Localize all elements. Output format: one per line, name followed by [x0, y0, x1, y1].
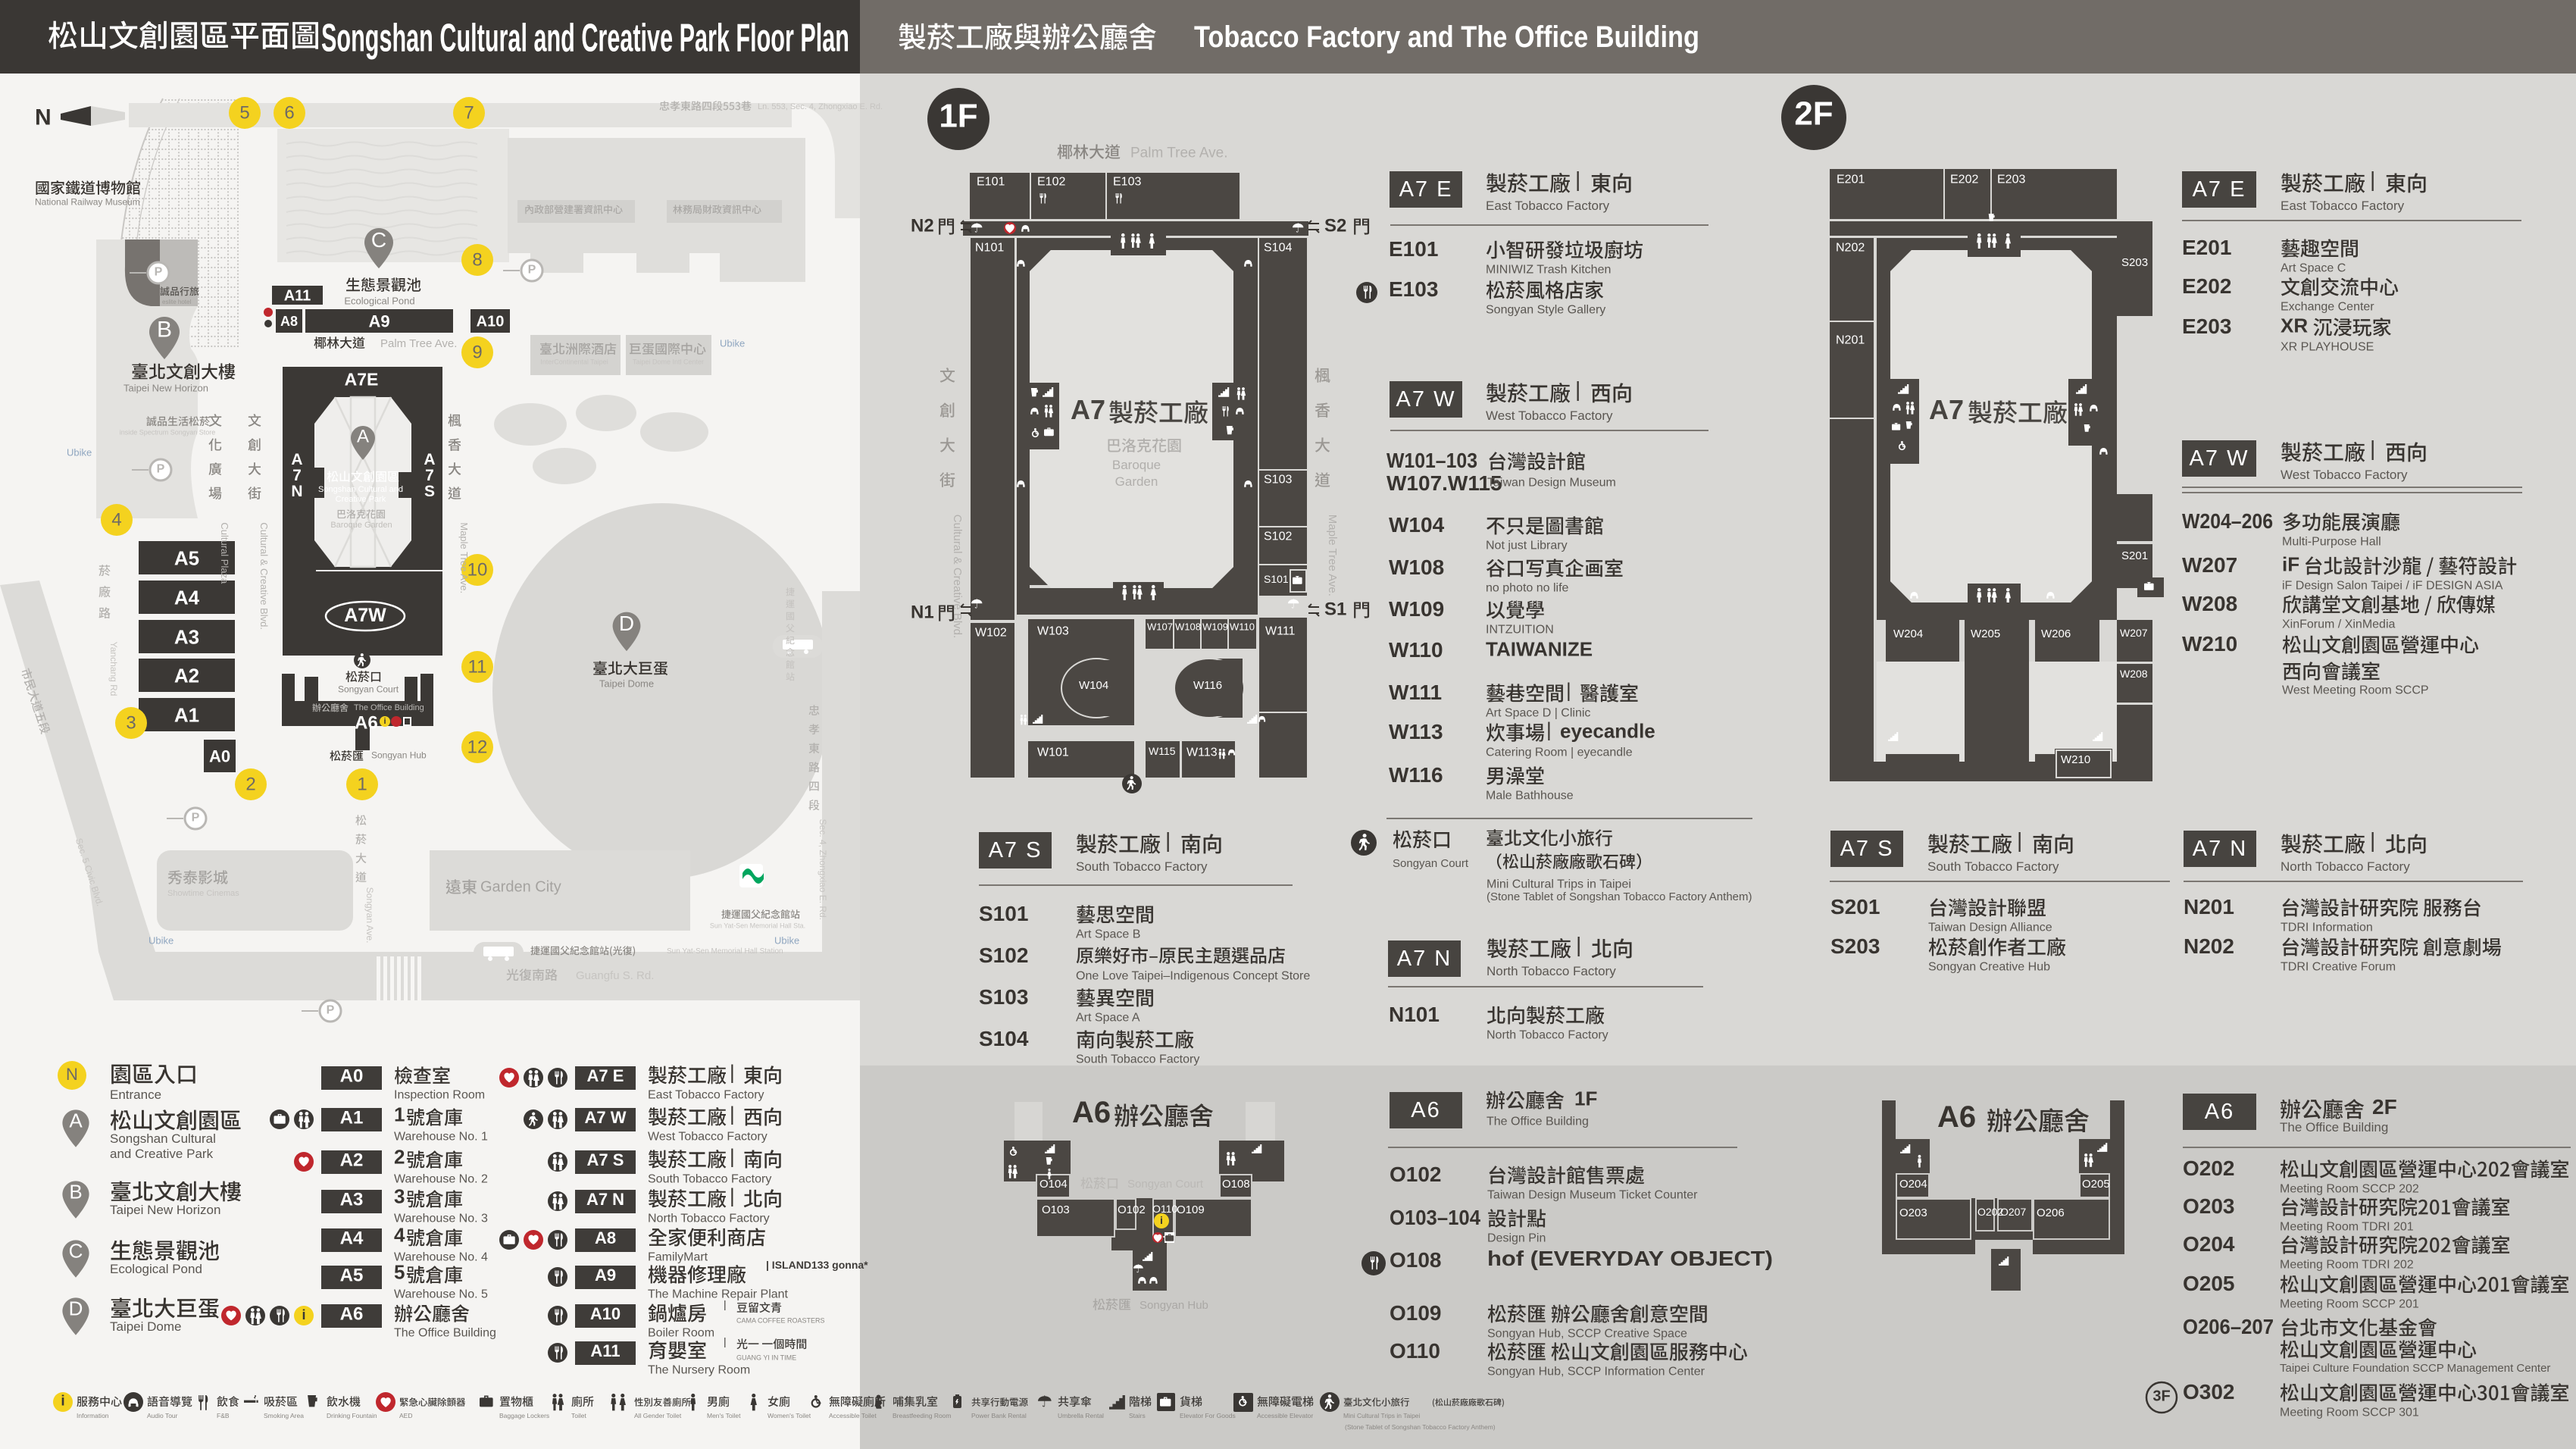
svg-text:E203: E203 [1997, 174, 2025, 186]
svg-text:FamilyMart: FamilyMart [648, 1251, 708, 1264]
svg-text:Ecological Pond: Ecological Pond [110, 1262, 202, 1276]
svg-text:W108: W108 [1389, 556, 1444, 579]
svg-text:i: i [1160, 1214, 1163, 1226]
svg-text:Baggage Lockers: Baggage Lockers [499, 1412, 549, 1419]
svg-text:Songyan Hub, SCCP Creative Spa: Songyan Hub, SCCP Creative Space [1487, 1328, 1687, 1341]
svg-text:iF: iF [2282, 553, 2299, 576]
svg-text:W204–206: W204–206 [2182, 509, 2273, 533]
svg-text:D: D [619, 612, 634, 635]
svg-text:A7 S: A7 S [587, 1150, 624, 1169]
svg-text:12: 12 [467, 737, 488, 757]
svg-text:Sun Yat-Sen Memorial Hall Stat: Sun Yat-Sen Memorial Hall Station [667, 947, 783, 956]
svg-text:9: 9 [472, 342, 482, 362]
svg-text:A11: A11 [284, 288, 311, 305]
svg-text:S203: S203 [1830, 934, 1880, 958]
svg-text:3: 3 [394, 1185, 405, 1208]
svg-text:O102: O102 [1390, 1163, 1442, 1186]
svg-text:C: C [69, 1240, 83, 1263]
svg-text:Accessible Toilet: Accessible Toilet [829, 1412, 877, 1419]
svg-text:A5: A5 [174, 546, 199, 569]
svg-text:Breastfeeding Room: Breastfeeding Room [893, 1412, 952, 1419]
svg-text:Garden City: Garden City [480, 878, 561, 895]
svg-text:O109: O109 [1390, 1301, 1442, 1325]
svg-text:A0: A0 [209, 746, 230, 765]
svg-text:Drinking Fountain: Drinking Fountain [327, 1412, 377, 1419]
svg-text:Male Bathhouse: Male Bathhouse [1486, 790, 1574, 803]
svg-text:A8: A8 [595, 1228, 616, 1247]
svg-text:N2: N2 [911, 215, 934, 236]
svg-text:TDRI Creative Forum: TDRI Creative Forum [2281, 961, 2396, 974]
svg-text:Songshan Cultural and: Songshan Cultural and [318, 485, 403, 494]
svg-text:S: S [424, 483, 435, 500]
svg-text:Meeting Room SCCP 202: Meeting Room SCCP 202 [2280, 1183, 2419, 1196]
svg-text:A7: A7 [1071, 394, 1105, 425]
svg-text:S104: S104 [979, 1027, 1029, 1050]
svg-text:South Tobacco Factory: South Tobacco Factory [648, 1173, 771, 1186]
svg-text:A7 W: A7 W [2190, 446, 2249, 471]
svg-text:Warehouse No. 3: Warehouse No. 3 [394, 1213, 488, 1225]
svg-text:Entrance: Entrance [110, 1088, 161, 1102]
svg-text:A1: A1 [340, 1107, 364, 1128]
svg-text:W208: W208 [2182, 592, 2237, 615]
svg-text:E203: E203 [2182, 315, 2231, 338]
svg-text:Toilet: Toilet [571, 1412, 586, 1419]
svg-text:E103: E103 [1389, 277, 1438, 301]
svg-text:F&B: F&B [217, 1412, 230, 1419]
svg-text:Meeting Room TDRI 201: Meeting Room TDRI 201 [2280, 1221, 2414, 1234]
svg-text:E101: E101 [977, 176, 1005, 189]
svg-text:Multi-Purpose Hall: Multi-Purpose Hall [2282, 536, 2381, 549]
svg-text:Women's Toilet: Women's Toilet [767, 1412, 811, 1419]
svg-text:Ubike: Ubike [774, 934, 799, 946]
svg-text:Palm Tree Ave.: Palm Tree Ave. [380, 337, 457, 350]
svg-text:|: | [1575, 167, 1580, 191]
svg-text:Maple Tree Ave.: Maple Tree Ave. [458, 522, 470, 593]
svg-text:E101: E101 [1389, 237, 1438, 261]
svg-text:A7 S: A7 S [989, 838, 1043, 862]
svg-text:Guangfu S. Rd.: Guangfu S. Rd. [576, 969, 654, 982]
svg-text:|: | [730, 1061, 735, 1084]
svg-text:7: 7 [292, 467, 302, 484]
svg-text:|: | [730, 1145, 735, 1168]
svg-text:All Gender Toilet: All Gender Toilet [634, 1412, 682, 1419]
svg-text:O110: O110 [1390, 1339, 1440, 1363]
svg-text:Catering Room | eyecandle: Catering Room | eyecandle [1486, 746, 1633, 759]
svg-text:Warehouse No. 5: Warehouse No. 5 [394, 1288, 488, 1301]
svg-text:N: N [35, 105, 52, 130]
svg-text:W208: W208 [2120, 668, 2148, 680]
svg-text:Meeting Room SCCP 301: Meeting Room SCCP 301 [2280, 1407, 2419, 1419]
svg-text:eslite hotel: eslite hotel [162, 299, 191, 305]
svg-text:O203: O203 [2183, 1194, 2235, 1218]
svg-text:P: P [528, 264, 536, 277]
svg-text:W116: W116 [1193, 679, 1222, 692]
svg-text:S201: S201 [1830, 895, 1880, 919]
svg-text:Boiler Room: Boiler Room [648, 1327, 714, 1340]
svg-text:A7 E: A7 E [587, 1066, 624, 1085]
svg-text:InterContinental Taipei: InterContinental Taipei [540, 358, 608, 365]
svg-text:N202: N202 [1836, 242, 1865, 255]
svg-text:Exchange Center: Exchange Center [2281, 301, 2374, 314]
svg-text:W111: W111 [1265, 625, 1296, 638]
svg-text:S101: S101 [1264, 573, 1289, 585]
svg-text:A7E: A7E [345, 370, 379, 390]
svg-text:Smoking Area: Smoking Area [264, 1412, 304, 1419]
svg-text:|: | [2017, 828, 2022, 852]
svg-text:hof (EVERYDAY OBJECT): hof (EVERYDAY OBJECT) [1487, 1247, 1773, 1270]
svg-text:The Nursery Room: The Nursery Room [648, 1364, 750, 1377]
svg-text:1F: 1F [1574, 1088, 1597, 1110]
svg-text:O204: O204 [1899, 1178, 1927, 1191]
svg-text:W104: W104 [1389, 513, 1445, 537]
svg-text:Umbrella Rental: Umbrella Rental [1058, 1412, 1104, 1419]
svg-text:Warehouse No. 2: Warehouse No. 2 [394, 1173, 488, 1186]
svg-text:W109: W109 [1202, 621, 1228, 632]
svg-text:A7 E: A7 E [1399, 177, 1453, 202]
svg-text:A6: A6 [2205, 1100, 2234, 1124]
svg-text:W115: W115 [1149, 745, 1176, 757]
svg-text:Men's Toilet: Men's Toilet [707, 1412, 741, 1419]
svg-text:inside Spectrum Songyan Store: inside Spectrum Songyan Store [120, 428, 216, 436]
svg-text:Maple Tree Ave.: Maple Tree Ave. [1326, 515, 1339, 596]
svg-text:The Office Building: The Office Building [1487, 1116, 1589, 1128]
svg-text:A9: A9 [368, 311, 389, 330]
svg-text:TDRI Information: TDRI Information [2281, 922, 2373, 934]
svg-text:South Tobacco Factory: South Tobacco Factory [1076, 859, 1208, 874]
svg-text:A0: A0 [340, 1066, 364, 1086]
svg-text:Ln. 553, Sec. 4, Zhongxiao E.: Ln. 553, Sec. 4, Zhongxiao E. Rd. [758, 102, 883, 111]
svg-text:XR PLAYHOUSE: XR PLAYHOUSE [2281, 341, 2374, 354]
svg-text:A6: A6 [1072, 1096, 1111, 1129]
svg-text:North Tobacco Factory: North Tobacco Factory [648, 1213, 770, 1225]
svg-text:N201: N201 [2184, 895, 2234, 919]
svg-text:O108: O108 [1390, 1248, 1442, 1272]
svg-text:i: i [61, 1394, 64, 1410]
svg-text:|: | [730, 1103, 735, 1125]
svg-text:North Tobacco Factory: North Tobacco Factory [1487, 964, 1616, 978]
svg-text:|: | [2370, 167, 2375, 191]
svg-text:Garden: Garden [1115, 474, 1158, 489]
svg-text:i: i [302, 1307, 305, 1322]
svg-text:Taiwan Design Alliance: Taiwan Design Alliance [1928, 922, 2052, 934]
svg-text:AED: AED [399, 1412, 412, 1419]
svg-text:A7: A7 [1929, 394, 1964, 425]
svg-text:E201: E201 [2182, 236, 2231, 259]
svg-text:W110: W110 [1230, 621, 1255, 632]
svg-text:Not just Library: Not just Library [1486, 540, 1568, 552]
svg-text:Songyan Creative Hub: Songyan Creative Hub [1928, 961, 2050, 974]
svg-text:Cultural Plaza: Cultural Plaza [219, 522, 230, 584]
svg-text:S101: S101 [979, 902, 1028, 925]
svg-text:A7W: A7W [344, 605, 386, 626]
svg-text:O205: O205 [2082, 1178, 2110, 1191]
svg-text:Yanchang Rd: Yanchang Rd [108, 642, 119, 696]
svg-text:West Tobacco Factory: West Tobacco Factory [648, 1131, 767, 1144]
svg-text:|: | [1546, 718, 1552, 741]
svg-text:W108: W108 [1175, 621, 1201, 632]
svg-text:5: 5 [239, 102, 249, 123]
svg-text:11: 11 [468, 656, 487, 677]
svg-text:2: 2 [394, 1146, 405, 1169]
svg-text:|: | [2370, 437, 2375, 460]
svg-text:O302: O302 [2183, 1380, 2235, 1404]
svg-text:A7 N: A7 N [586, 1190, 624, 1209]
svg-text:Songyan Court: Songyan Court [338, 684, 399, 695]
svg-text:1F: 1F [939, 98, 977, 135]
svg-text:West Tobacco Factory: West Tobacco Factory [2281, 468, 2408, 482]
svg-text:E102: E102 [1037, 176, 1065, 189]
svg-text:W205: W205 [1971, 627, 2000, 640]
svg-text:A3: A3 [340, 1189, 364, 1210]
svg-text:Songyan Court: Songyan Court [1127, 1178, 1204, 1191]
svg-text:eyecandle: eyecandle [1560, 720, 1655, 743]
svg-text:S2: S2 [1324, 215, 1346, 236]
svg-text:|: | [2370, 828, 2375, 852]
svg-text:O206–207: O206–207 [2183, 1315, 2274, 1338]
svg-text:Taiwan Design Museum Ticket Co: Taiwan Design Museum Ticket Counter [1487, 1189, 1698, 1202]
svg-text:A11: A11 [590, 1341, 620, 1360]
svg-text:N201: N201 [1836, 334, 1865, 347]
svg-text:|: | [724, 1298, 727, 1310]
svg-text:XR: XR [2281, 315, 2308, 337]
svg-text:Accessible Elevator: Accessible Elevator [1257, 1412, 1313, 1419]
svg-text:A7 N: A7 N [1397, 947, 1452, 971]
svg-text:iF Design Salon Taipei / iF DE: iF Design Salon Taipei / iF DESIGN ASIA [2282, 580, 2503, 593]
svg-text:West Tobacco Factory: West Tobacco Factory [1486, 408, 1613, 423]
svg-text:1: 1 [394, 1103, 405, 1126]
svg-text:Ubike: Ubike [148, 934, 174, 946]
svg-text:O202: O202 [2183, 1156, 2235, 1180]
svg-text:Baroque: Baroque [1112, 458, 1161, 472]
svg-text:O109: O109 [1177, 1203, 1205, 1216]
svg-text:N202: N202 [2184, 934, 2234, 958]
svg-text:Palm Tree Ave.: Palm Tree Ave. [1130, 146, 1228, 161]
svg-text:|: | [1566, 679, 1571, 702]
svg-text:East Tobacco Factory: East Tobacco Factory [648, 1089, 764, 1102]
svg-text:E201: E201 [1837, 174, 1865, 186]
svg-text:2F: 2F [1794, 95, 1833, 133]
svg-text:Songyan Hub: Songyan Hub [371, 750, 427, 761]
svg-text:W107: W107 [1147, 621, 1173, 632]
svg-text:TAIWANIZE: TAIWANIZE [1486, 638, 1593, 661]
svg-text:North Tobacco Factory: North Tobacco Factory [1487, 1029, 1608, 1042]
svg-text:Songshan Cultural: Songshan Cultural [110, 1131, 216, 1146]
svg-text:7: 7 [425, 467, 434, 484]
svg-text:Stairs: Stairs [1129, 1412, 1146, 1419]
svg-text:S203: S203 [2121, 256, 2148, 269]
svg-text:6: 6 [284, 102, 294, 123]
svg-text:W207: W207 [2182, 553, 2237, 577]
svg-text:Meeting Room TDRI 202: Meeting Room TDRI 202 [2280, 1259, 2414, 1272]
svg-text:Taipei New Horizon: Taipei New Horizon [110, 1203, 220, 1217]
svg-text:Ubike: Ubike [720, 337, 745, 349]
svg-text:Art Space D | Clinic: Art Space D | Clinic [1486, 707, 1590, 720]
svg-text:W210: W210 [2061, 753, 2090, 766]
svg-text:The Office Building: The Office Building [2280, 1120, 2388, 1134]
svg-text:N101: N101 [975, 242, 1004, 255]
svg-text:The Office Building: The Office Building [354, 703, 424, 712]
svg-text:Art Space C: Art Space C [2281, 262, 2346, 275]
svg-text:C: C [371, 228, 386, 252]
svg-text:E202: E202 [2182, 274, 2231, 298]
svg-text:East Tobacco Factory: East Tobacco Factory [2281, 199, 2405, 213]
svg-text:O206: O206 [2037, 1206, 2065, 1219]
svg-text:S103: S103 [1264, 474, 1292, 487]
svg-text:A2: A2 [174, 664, 199, 687]
svg-text:Songyan Court: Songyan Court [1393, 857, 1469, 870]
svg-text:S102: S102 [1264, 530, 1292, 543]
svg-text:A7 N: A7 N [2193, 837, 2247, 861]
svg-text:A7 W: A7 W [1396, 387, 1456, 412]
svg-text:Sec. 4, Zhongxiao E. Rd.: Sec. 4, Zhongxiao E. Rd. [818, 819, 828, 920]
svg-text:N: N [66, 1065, 78, 1084]
svg-text:|: | [724, 1335, 727, 1347]
svg-text:Design Pin: Design Pin [1487, 1232, 1546, 1245]
svg-text:Power Bank Rental: Power Bank Rental [971, 1412, 1027, 1419]
svg-text:Warehouse No. 4: Warehouse No. 4 [394, 1251, 488, 1264]
svg-text:Tobacco Factory and The Office: Tobacco Factory and The Office Building [1194, 20, 1699, 54]
svg-text:W103: W103 [1037, 625, 1069, 638]
svg-text:Warehouse No. 1: Warehouse No. 1 [394, 1131, 488, 1144]
svg-text:4: 4 [111, 509, 121, 530]
svg-text:P: P [192, 812, 200, 825]
svg-text:Creative Park: Creative Park [336, 495, 386, 504]
svg-text:2F: 2F [2372, 1095, 2397, 1119]
svg-text:O204: O204 [2183, 1232, 2235, 1256]
svg-text:3F: 3F [2152, 1388, 2170, 1404]
svg-text:N: N [291, 483, 302, 500]
svg-text:i: i [383, 717, 386, 726]
svg-text:A1: A1 [174, 703, 199, 726]
svg-text:3: 3 [126, 712, 136, 733]
svg-text:(Stone Tablet of Songshan Toba: (Stone Tablet of Songshan Tobacco Factor… [1345, 1423, 1496, 1431]
svg-text:O203: O203 [1899, 1206, 1927, 1219]
svg-text:S104: S104 [1264, 242, 1292, 255]
svg-text:A4: A4 [340, 1228, 364, 1248]
svg-text:East Tobacco Factory: East Tobacco Factory [1486, 199, 1610, 213]
svg-text:A10: A10 [477, 314, 505, 330]
svg-text:National Railway Museum: National Railway Museum [35, 197, 140, 208]
svg-text:|: | [730, 1185, 735, 1207]
svg-text:CAMA COFFEE ROASTERS: CAMA COFFEE ROASTERS [736, 1316, 825, 1324]
svg-text:O104: O104 [1039, 1178, 1068, 1191]
svg-text:Songyan Ave.: Songyan Ave. [364, 887, 375, 944]
svg-text:W110: W110 [1389, 638, 1443, 662]
svg-text:W116: W116 [1389, 763, 1443, 787]
svg-text:Cultural & Creative Blvd.: Cultural & Creative Blvd. [258, 522, 270, 630]
svg-text:W101–103: W101–103 [1386, 449, 1477, 472]
svg-text:B: B [69, 1181, 82, 1203]
svg-text:E103: E103 [1113, 176, 1141, 189]
svg-text:E202: E202 [1950, 174, 1978, 186]
svg-text:S103: S103 [979, 985, 1028, 1009]
svg-text:and Creative Park: and Creative Park [110, 1147, 214, 1161]
svg-text:MINIWIZ Trash Kitchen: MINIWIZ Trash Kitchen [1486, 264, 1611, 277]
svg-text:W207: W207 [2120, 627, 2148, 639]
svg-text:W113: W113 [1186, 746, 1218, 759]
svg-text:Mini Cultural Trips in Taipei: Mini Cultural Trips in Taipei [1487, 878, 1631, 891]
svg-text:Ecological Pond: Ecological Pond [344, 295, 414, 306]
svg-text:Elevator For Goods: Elevator For Goods [1180, 1412, 1236, 1419]
svg-text:A10: A10 [590, 1304, 621, 1323]
svg-text:D: D [69, 1297, 83, 1320]
svg-text:South Tobacco Factory: South Tobacco Factory [1076, 1053, 1199, 1066]
svg-text:South Tobacco Factory: South Tobacco Factory [1927, 859, 2059, 874]
svg-text:Songyan Style Gallery: Songyan Style Gallery [1486, 304, 1605, 317]
svg-text:The Office Building: The Office Building [394, 1327, 496, 1340]
svg-text:W210: W210 [2182, 632, 2237, 656]
svg-text:Taiwan Design Museum: Taiwan Design Museum [1487, 477, 1616, 490]
svg-text:|: | [1575, 377, 1580, 401]
svg-text:Taipei Dome Intl Center: Taipei Dome Intl Center [633, 358, 704, 365]
svg-text:P: P [155, 266, 163, 279]
svg-text:W101: W101 [1037, 746, 1069, 759]
svg-text:W104: W104 [1079, 679, 1108, 692]
svg-text:A6: A6 [1411, 1098, 1440, 1122]
svg-text:7: 7 [464, 102, 474, 123]
svg-text:Taipei Dome: Taipei Dome [599, 678, 654, 689]
svg-text:A8: A8 [280, 314, 298, 329]
svg-text:A: A [291, 451, 302, 468]
svg-text:W204: W204 [1893, 627, 1923, 640]
svg-text:A4: A4 [174, 586, 200, 609]
svg-text:A6: A6 [1937, 1100, 1976, 1134]
svg-text:A7 S: A7 S [1840, 837, 1894, 861]
svg-text:5: 5 [394, 1261, 405, 1284]
svg-text:Information: Information [77, 1412, 109, 1419]
svg-text:A: A [357, 426, 369, 446]
svg-text:Songshan Cultural and Creative: Songshan Cultural and Creative Park Floo… [321, 16, 849, 60]
svg-text:W109: W109 [1389, 597, 1444, 621]
svg-text:Taipei Culture Foundation SCCP: Taipei Culture Foundation SCCP Managemen… [2280, 1362, 2550, 1375]
svg-text:Showtime Cinemas: Showtime Cinemas [167, 889, 239, 898]
svg-text:S1: S1 [1324, 599, 1346, 619]
svg-text:O207: O207 [2000, 1206, 2026, 1218]
svg-text:P: P [327, 1004, 335, 1017]
svg-text:A2: A2 [340, 1150, 364, 1170]
svg-text:Ubike: Ubike [67, 446, 92, 458]
svg-text:O102: O102 [1118, 1203, 1146, 1216]
svg-text:A6: A6 [340, 1303, 364, 1324]
svg-text:S201: S201 [2121, 549, 2148, 562]
svg-text:One Love Taipei–Indigenous Con: One Love Taipei–Indigenous Concept Store [1076, 970, 1310, 983]
svg-text:|: | [1165, 828, 1171, 852]
svg-text:A5: A5 [340, 1265, 364, 1285]
svg-text:A3: A3 [174, 625, 199, 648]
svg-text:P: P [157, 463, 165, 476]
svg-text:Audio Tour: Audio Tour [147, 1412, 178, 1419]
svg-text:no photo no life: no photo no life [1486, 582, 1569, 595]
svg-text:B: B [157, 318, 172, 343]
svg-text:A6: A6 [355, 712, 378, 733]
svg-text:Sun Yat-Sen Memorial Hall Sta.: Sun Yat-Sen Memorial Hall Sta. [710, 922, 805, 929]
svg-text:S102: S102 [979, 944, 1028, 967]
svg-text:Art Space B: Art Space B [1076, 928, 1140, 941]
svg-text:West Meeting Room SCCP: West Meeting Room SCCP [2282, 684, 2429, 697]
svg-text:2: 2 [245, 774, 255, 794]
svg-text:Songyan Hub: Songyan Hub [1140, 1299, 1208, 1312]
svg-text:A: A [69, 1109, 83, 1132]
svg-text:North Tobacco Factory: North Tobacco Factory [2281, 859, 2410, 874]
svg-text:W111: W111 [1389, 681, 1442, 704]
svg-text:O205: O205 [2183, 1272, 2235, 1295]
svg-text:| ISLAND133 gonna*: | ISLAND133 gonna* [766, 1259, 868, 1271]
svg-text:W206: W206 [2041, 627, 2071, 640]
svg-text:|: | [1576, 933, 1581, 956]
svg-text:O103–104: O103–104 [1390, 1206, 1480, 1229]
svg-text:1: 1 [357, 774, 367, 794]
svg-text:Art Space A: Art Space A [1076, 1012, 1140, 1025]
